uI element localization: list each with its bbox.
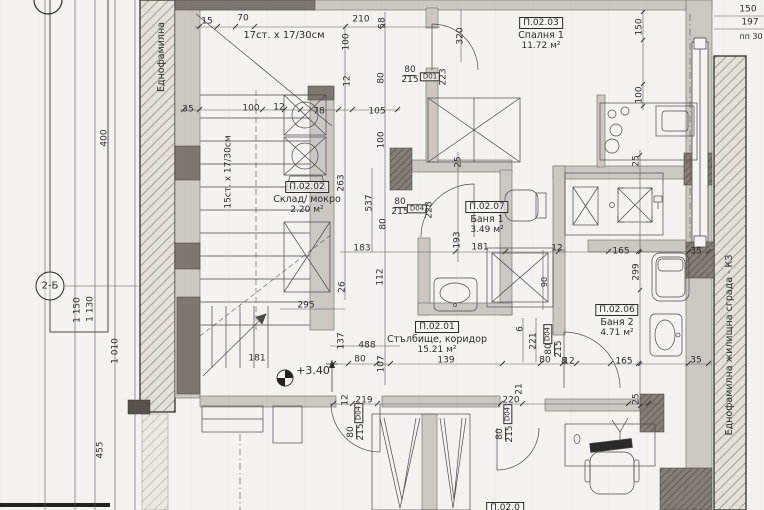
dim-label: 150	[635, 18, 644, 35]
stair-note-top: 17ст. х 17/30см	[243, 31, 324, 42]
door-size-label: 80215	[401, 66, 418, 86]
room-id: П.02.01	[415, 321, 458, 333]
dim-label: 139	[437, 356, 454, 365]
floor-plan-sheet: 157021058320150197пп 3015010010012803510…	[0, 0, 764, 510]
side-label-right: Еднофамилна жилищна сграда - КЗ	[725, 255, 735, 436]
dim-label: 165	[612, 247, 629, 256]
room-name: Спалня 1	[518, 30, 564, 41]
dim-label: 223	[439, 68, 448, 85]
dim-label: 100	[635, 86, 644, 103]
dim-label: 58	[378, 17, 387, 28]
side-label-left: Еднофамилна	[157, 22, 167, 92]
door-code-label: D01	[420, 72, 440, 81]
dim-label: 12	[563, 357, 574, 366]
dim-label: 455	[96, 441, 105, 458]
dim-label: 15	[201, 17, 212, 26]
room-name: Склад/ мокро	[273, 194, 341, 205]
dim-label: 100	[377, 131, 386, 148]
door-code-label: D04	[543, 324, 552, 344]
annotation-layer: 157021058320150197пп 3015010010012803510…	[0, 0, 764, 510]
dim-label: 105	[368, 107, 385, 116]
dim-label: 25	[454, 156, 463, 167]
dim-label: 6	[516, 326, 525, 332]
dim-label: 100	[242, 104, 259, 113]
dim-label: 1 150	[73, 297, 82, 323]
dim-label: 210	[352, 15, 369, 24]
dim-label: 1 130	[86, 296, 95, 322]
dim-label: 400	[100, 129, 109, 146]
dim-label: 1 010	[111, 338, 120, 364]
dim-label: 228	[425, 201, 434, 218]
dim-label: 221	[529, 332, 538, 349]
dim-label: 320	[456, 27, 465, 44]
dim-label: 80	[354, 355, 365, 364]
room-id: П.02.07	[465, 201, 508, 213]
room-label-П.02.01: П.02.01Стълбище, коридор15.21 м²	[387, 321, 487, 355]
dim-label: 537	[365, 194, 374, 211]
note-pp30: пп 30	[739, 33, 762, 41]
dim-label: 183	[353, 244, 370, 253]
dim-label: 35	[690, 356, 701, 365]
dim-label: 12	[343, 75, 352, 86]
dim-label: 295	[297, 301, 314, 310]
door-code-label: D04	[503, 404, 512, 424]
dim-label: 193	[453, 231, 462, 248]
dim-label: 112	[376, 268, 385, 285]
room-area: 2.20 м²	[290, 205, 323, 215]
room-id: П.02.0	[486, 502, 524, 510]
room-area: 3.49 м²	[470, 225, 503, 235]
dim-label: 80	[539, 356, 550, 365]
room-area: 15.21 м²	[417, 345, 456, 355]
dim-label: 35	[182, 105, 193, 114]
room-area: 4.71 м²	[600, 328, 633, 338]
door-size-label: 80215	[347, 423, 367, 440]
level-marker-label: +3.40	[296, 365, 330, 377]
dim-label: 181	[471, 243, 488, 252]
stair-note-side: 15ст. х 17/30см	[224, 135, 233, 208]
dim-label: 90	[541, 277, 549, 287]
dim-label: 150	[739, 5, 756, 14]
dim-label: 80	[379, 218, 388, 229]
room-id: П.02.06	[595, 304, 638, 316]
room-name: Стълбище, коридор	[387, 334, 487, 345]
dim-label: 12	[551, 244, 562, 253]
room-label-П.02.03: П.02.03Спалня 111.72 м²	[518, 17, 564, 51]
dim-label: 197	[741, 18, 758, 27]
dim-label: 12	[273, 103, 284, 112]
dim-label: 26	[338, 281, 347, 292]
room-label-П.02.07: П.02.07Баня 13.49 м²	[465, 201, 508, 235]
grid-marker-2-Б: 2-Б	[36, 272, 65, 301]
door-code-label: D04	[354, 403, 363, 423]
room-name: Баня 2	[600, 317, 633, 328]
dim-label: 181	[248, 354, 265, 363]
dim-label: 78	[313, 107, 324, 116]
dim-label: 299	[632, 263, 641, 280]
dim-label: 25	[632, 393, 641, 404]
dim-label: 21	[515, 383, 524, 394]
dim-label: 137	[337, 332, 346, 349]
dim-label: 70	[237, 14, 248, 23]
dim-label: 12	[341, 394, 350, 405]
room-label-П.02.06: П.02.06Баня 24.71 м²	[595, 304, 638, 338]
room-label-П.02.02: П.02.02Склад/ мокро2.20 м²	[273, 181, 341, 215]
dim-label: 35	[690, 247, 701, 256]
dim-label: 488	[358, 341, 375, 350]
dim-label: 80	[377, 72, 386, 83]
room-id: П.02.02	[285, 181, 328, 193]
dim-label: 107	[377, 355, 386, 372]
dim-label: 165	[615, 357, 632, 366]
room-area: 11.72 м²	[521, 41, 560, 51]
door-size-label: 80215	[496, 425, 516, 442]
dim-label: 100	[342, 33, 351, 50]
room-id: П.02.03	[519, 17, 562, 29]
room-name: Баня 1	[470, 214, 503, 225]
room-label-П.02.0: П.02.0	[486, 502, 524, 510]
dim-label: 25	[632, 155, 641, 166]
